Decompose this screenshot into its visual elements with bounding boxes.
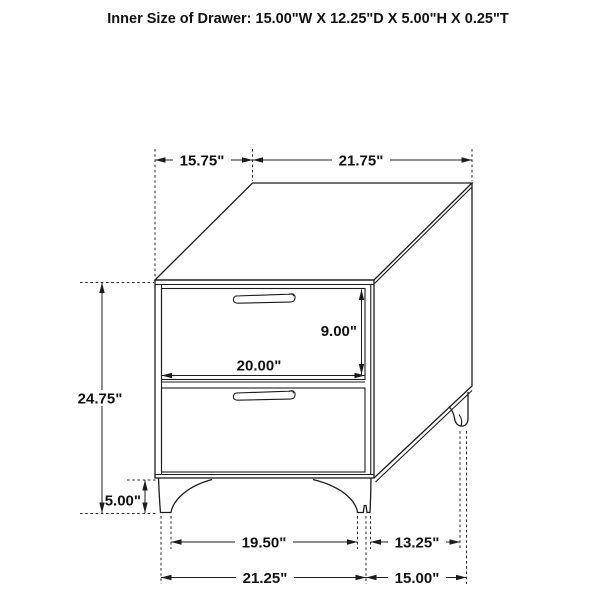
dim-label-drawer-height: 9.00" bbox=[321, 323, 357, 340]
dim-label-feet-outer-span: 21.25" bbox=[243, 570, 288, 587]
dim-label-side-feet-span: 13.25" bbox=[395, 534, 440, 551]
nightstand-drawing bbox=[155, 183, 472, 513]
front-right-leg bbox=[313, 478, 371, 513]
drawer-2 bbox=[162, 388, 366, 472]
page-title: Inner Size of Drawer: 15.00"W X 12.25"D … bbox=[107, 11, 509, 27]
dim-label-leg-height: 5.00" bbox=[105, 493, 141, 510]
top-panel bbox=[155, 183, 472, 284]
dim-label-drawer-width: 20.00" bbox=[237, 358, 282, 375]
drawer-2-handle bbox=[233, 391, 295, 400]
back-right-leg-curl bbox=[459, 415, 462, 427]
drawer-1-handle bbox=[233, 294, 295, 303]
dim-label-side-overall-span: 15.00" bbox=[395, 570, 440, 587]
side-panel bbox=[374, 183, 472, 482]
legs bbox=[159, 392, 469, 513]
dim-label-top-depth: 15.75" bbox=[180, 152, 225, 169]
dimension-diagram: Inner Size of Drawer: 15.00"W X 12.25"D … bbox=[0, 0, 600, 600]
dim-label-top-width: 21.75" bbox=[339, 152, 384, 169]
dimension-labels: 15.75" 21.75" 9.00" 20.00" 24.75" 5.00" … bbox=[78, 152, 440, 587]
dim-label-overall-height: 24.75" bbox=[78, 390, 123, 407]
front-left-leg bbox=[159, 478, 213, 513]
drawing-canvas: Inner Size of Drawer: 15.00"W X 12.25"D … bbox=[0, 0, 600, 600]
dim-label-feet-inner-span: 19.50" bbox=[242, 534, 287, 551]
